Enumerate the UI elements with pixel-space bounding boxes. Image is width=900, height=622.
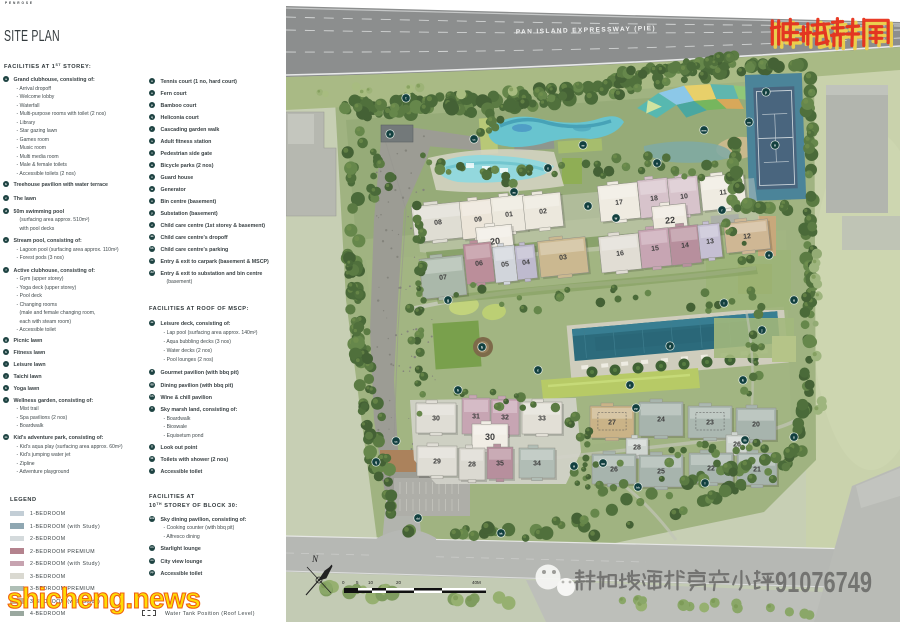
svg-text:h: h bbox=[457, 388, 459, 392]
svg-text:cc: cc bbox=[472, 137, 476, 141]
svg-text:k: k bbox=[742, 378, 744, 382]
svg-text:15: 15 bbox=[651, 245, 660, 253]
svg-text:34: 34 bbox=[533, 461, 541, 468]
svg-text:23: 23 bbox=[706, 420, 714, 427]
svg-text:05: 05 bbox=[501, 261, 510, 269]
svg-text:ff: ff bbox=[573, 464, 575, 468]
svg-text:31: 31 bbox=[472, 414, 480, 421]
svg-text:kk: kk bbox=[499, 531, 503, 535]
svg-text:10: 10 bbox=[680, 193, 689, 201]
svg-text:ee: ee bbox=[581, 143, 585, 147]
svg-text:16: 16 bbox=[616, 250, 625, 258]
svg-text:N: N bbox=[311, 554, 319, 564]
svg-text:13: 13 bbox=[706, 238, 715, 246]
svg-text:c: c bbox=[537, 368, 539, 372]
svg-text:cc: cc bbox=[394, 439, 398, 443]
svg-text:g: g bbox=[447, 298, 449, 302]
svg-text:28: 28 bbox=[468, 462, 476, 469]
svg-text:02: 02 bbox=[539, 208, 548, 216]
svg-text:12: 12 bbox=[743, 233, 752, 241]
svg-text:ii: ii bbox=[656, 161, 658, 165]
svg-text:40M: 40M bbox=[472, 580, 481, 585]
svg-text:aa: aa bbox=[512, 190, 516, 194]
svg-text:33: 33 bbox=[538, 416, 546, 423]
svg-text:b: b bbox=[481, 345, 483, 349]
svg-text:u: u bbox=[587, 204, 589, 208]
svg-text:q: q bbox=[375, 460, 377, 464]
svg-text:j: j bbox=[761, 328, 763, 332]
svg-text:v: v bbox=[389, 132, 391, 136]
svg-text:30: 30 bbox=[485, 432, 495, 442]
svg-text:04: 04 bbox=[522, 259, 531, 267]
svg-text:n: n bbox=[774, 143, 776, 147]
svg-text:s: s bbox=[793, 435, 795, 439]
svg-text:14: 14 bbox=[681, 242, 690, 250]
svg-text:32: 32 bbox=[501, 415, 509, 422]
svg-text:09: 09 bbox=[474, 216, 483, 224]
svg-text:10: 10 bbox=[368, 580, 374, 585]
svg-text:35: 35 bbox=[496, 461, 504, 468]
svg-text:p: p bbox=[765, 90, 767, 94]
svg-text:20: 20 bbox=[396, 580, 402, 585]
svg-text:25: 25 bbox=[657, 469, 665, 476]
svg-text:mm: mm bbox=[702, 128, 707, 132]
svg-text:01: 01 bbox=[505, 211, 514, 219]
svg-text:dd: dd bbox=[416, 516, 420, 520]
svg-text:08: 08 bbox=[434, 219, 443, 227]
svg-text:e: e bbox=[629, 383, 631, 387]
svg-text:27: 27 bbox=[608, 420, 616, 427]
svg-text:d: d bbox=[669, 344, 671, 348]
svg-text:m: m bbox=[743, 438, 746, 442]
svg-text:30: 30 bbox=[432, 416, 440, 423]
svg-text:28: 28 bbox=[633, 445, 641, 452]
svg-text:w: w bbox=[614, 216, 618, 220]
svg-text:pp: pp bbox=[634, 406, 638, 410]
svg-text:i: i bbox=[724, 301, 725, 305]
svg-text:21: 21 bbox=[753, 467, 761, 474]
svg-text:06: 06 bbox=[475, 260, 484, 268]
svg-text:22: 22 bbox=[665, 215, 676, 226]
svg-text:17: 17 bbox=[615, 199, 624, 207]
svg-text:l: l bbox=[705, 481, 706, 485]
svg-text:29: 29 bbox=[433, 459, 441, 466]
svg-text:20: 20 bbox=[752, 422, 760, 429]
svg-text:gg: gg bbox=[601, 461, 605, 465]
svg-text:26: 26 bbox=[610, 467, 618, 474]
svg-text:11: 11 bbox=[719, 189, 727, 197]
svg-text:22: 22 bbox=[707, 466, 715, 473]
svg-text:18: 18 bbox=[650, 195, 659, 203]
svg-text:24: 24 bbox=[657, 417, 665, 424]
svg-text:ff: ff bbox=[768, 253, 770, 257]
svg-text:x: x bbox=[547, 166, 549, 170]
svg-text:hh: hh bbox=[636, 485, 640, 489]
svg-text:91076749: 91076749 bbox=[775, 567, 872, 599]
svg-text:o: o bbox=[793, 298, 795, 302]
svg-text:03: 03 bbox=[559, 254, 568, 262]
svg-text:nn: nn bbox=[747, 120, 751, 124]
svg-text:07: 07 bbox=[439, 274, 448, 282]
